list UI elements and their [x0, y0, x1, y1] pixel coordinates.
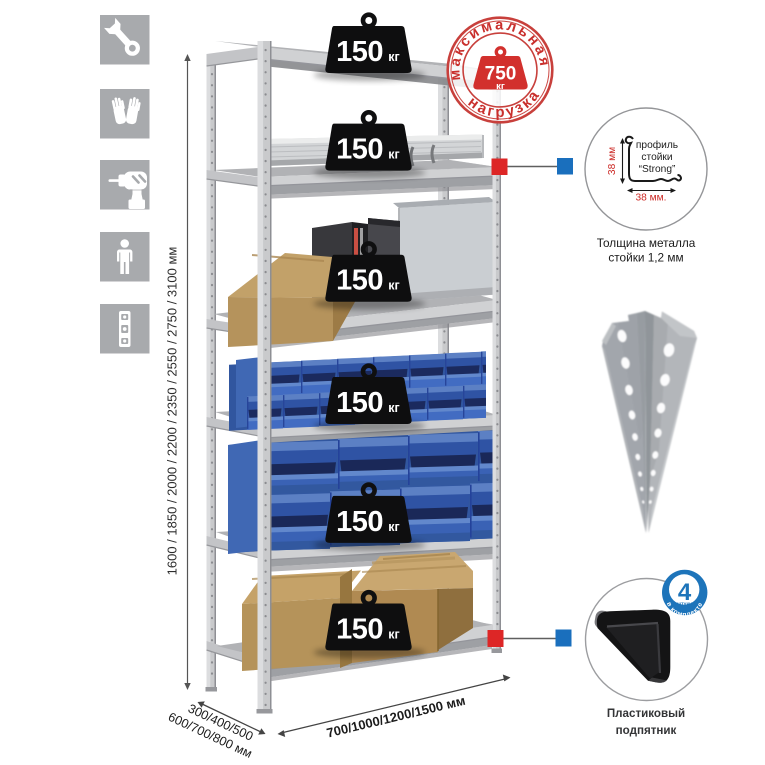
svg-text:38 мм.: 38 мм.: [635, 193, 666, 204]
svg-text:Толщина металла: Толщина металла: [597, 236, 696, 250]
svg-text:Пластиковый: Пластиковый: [607, 707, 685, 720]
svg-text:профиль: профиль: [636, 139, 678, 151]
svg-text:подпятник: подпятник: [616, 724, 677, 737]
svg-text:38 мм: 38 мм: [607, 147, 618, 175]
svg-text:кг: кг: [496, 81, 505, 92]
svg-text:стойки: стойки: [641, 152, 672, 163]
svg-text:штуки: штуки: [677, 602, 692, 608]
svg-text:“Strong”: “Strong”: [639, 164, 676, 175]
svg-text:1600 / 1850 / 2000 / 2200 / 23: 1600 / 1850 / 2000 / 2200 / 2350 / 2550 …: [165, 247, 180, 576]
svg-text:стойки 1,2 мм: стойки 1,2 мм: [608, 251, 683, 265]
